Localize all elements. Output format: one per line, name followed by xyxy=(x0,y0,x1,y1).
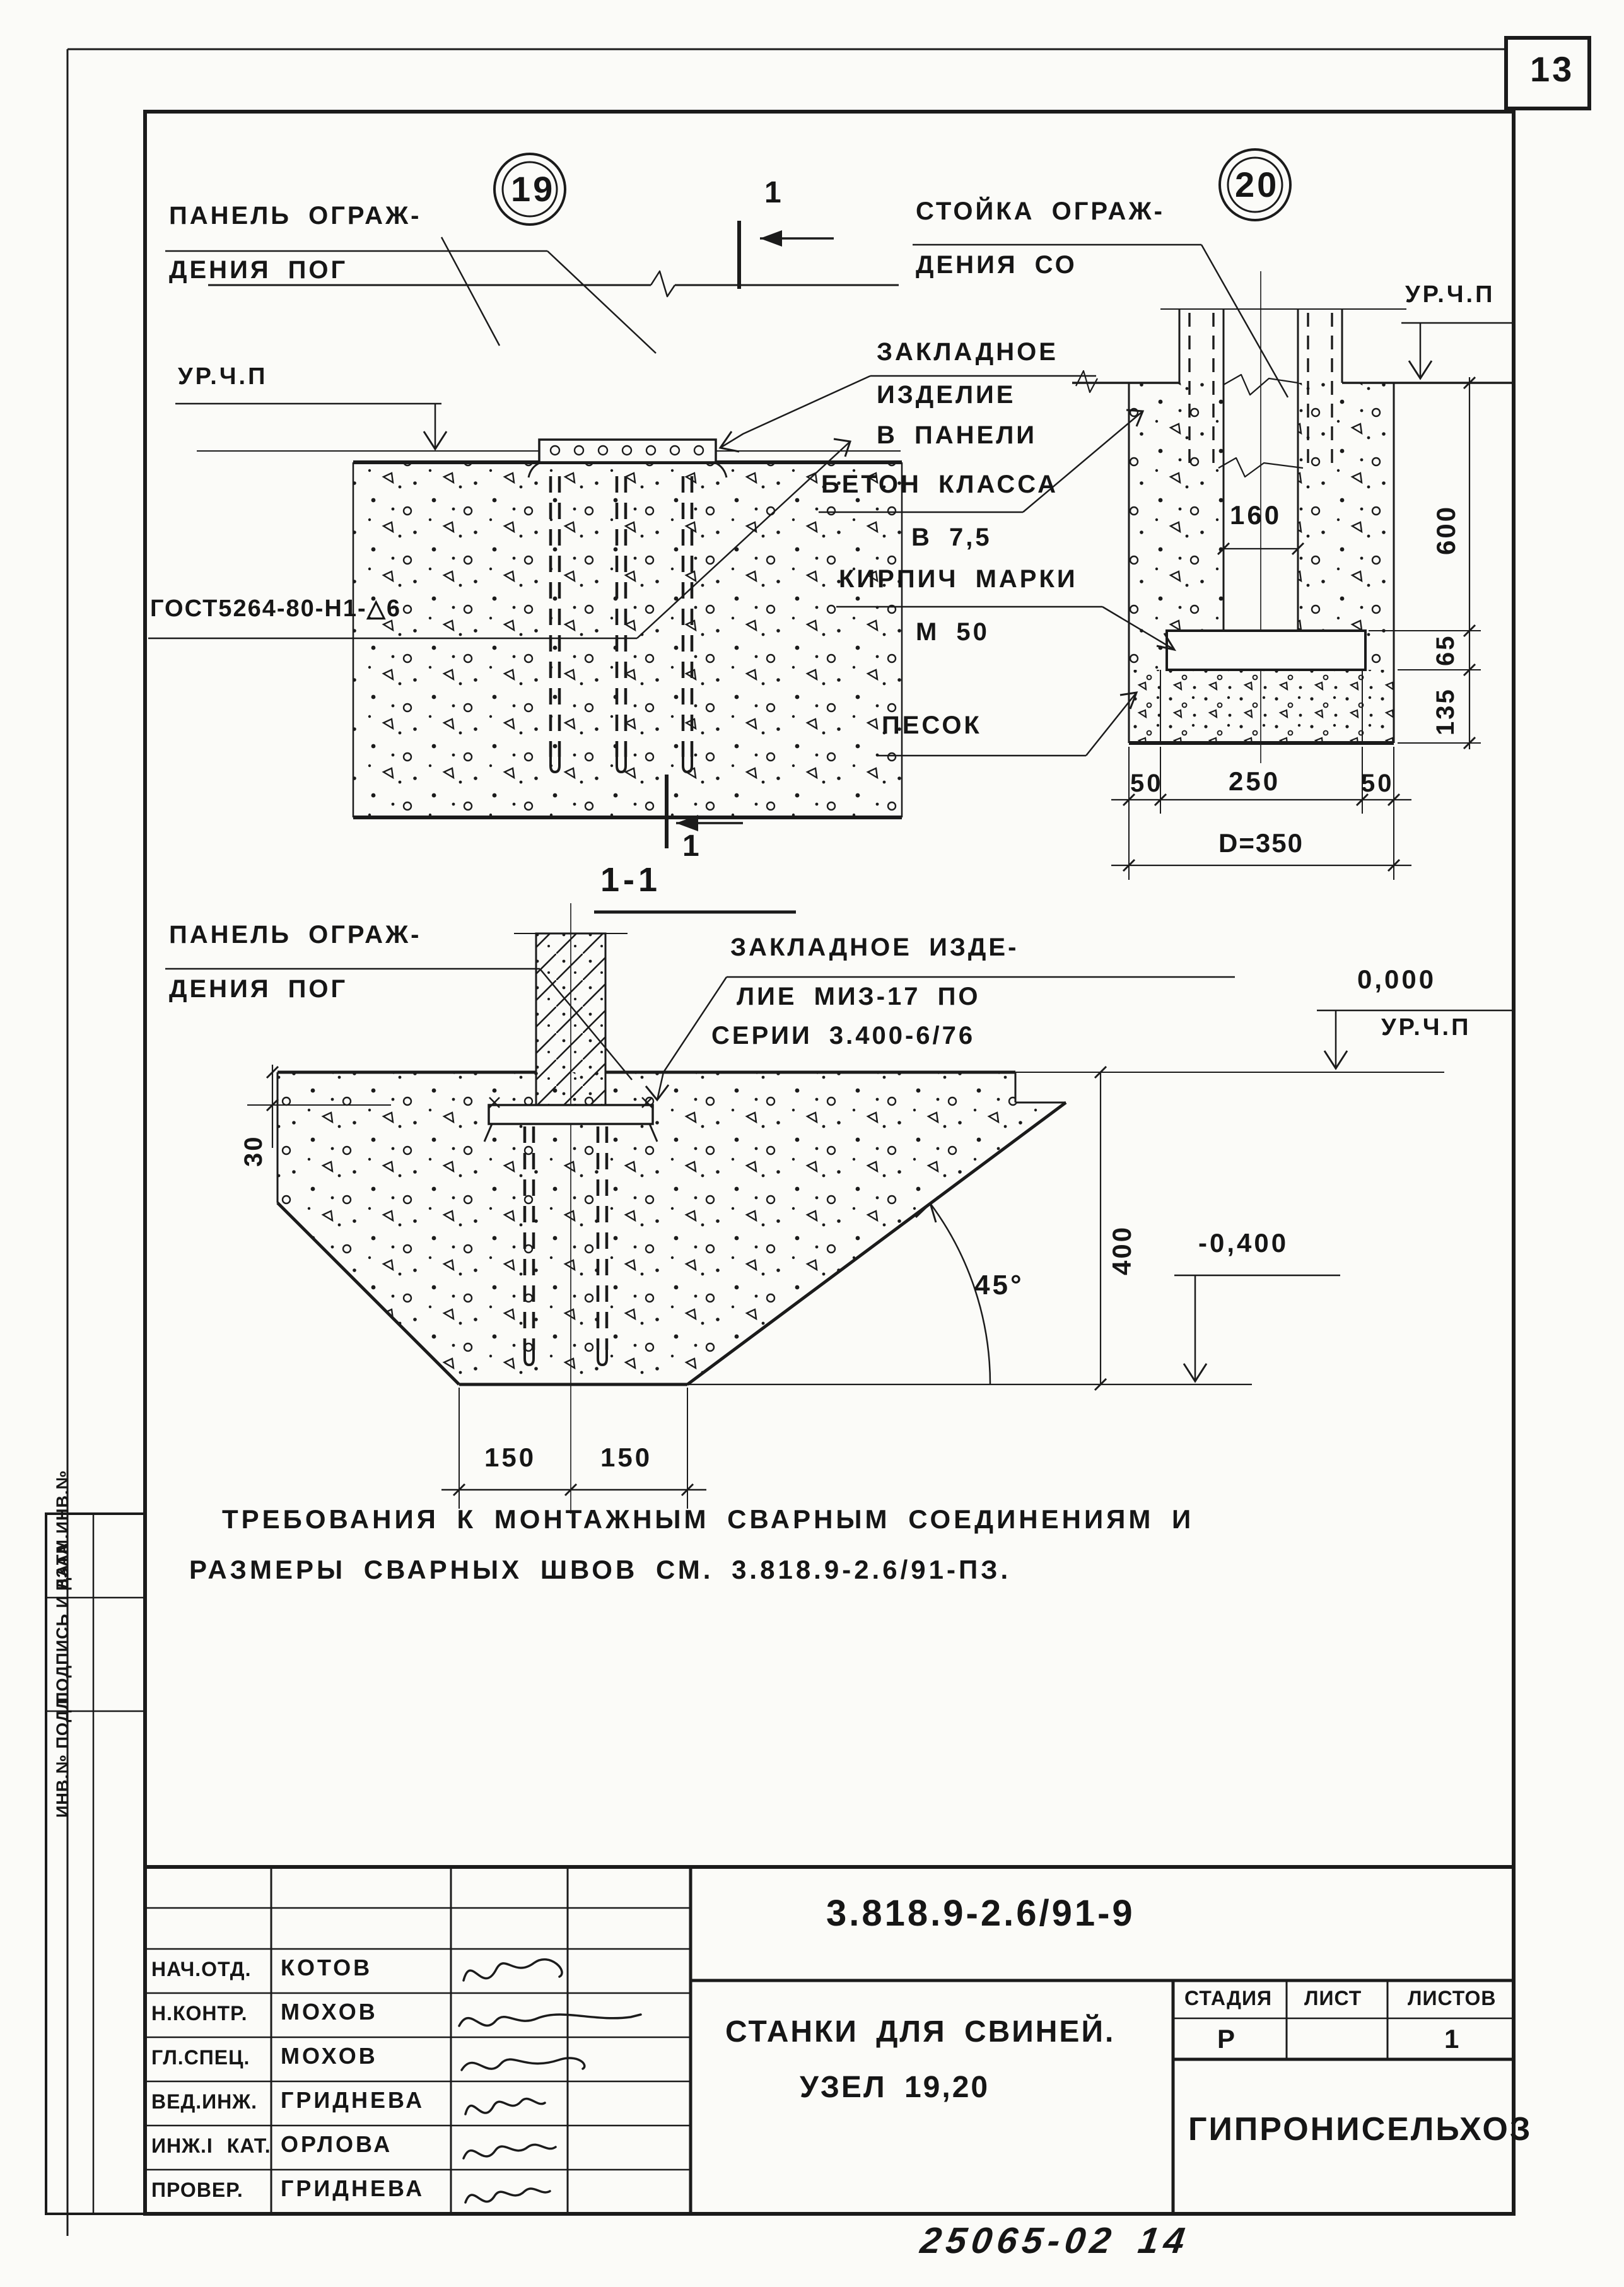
d19-cut-label-top: 1 xyxy=(764,178,784,208)
d20-concrete-label-2: В 7,5 xyxy=(911,525,992,550)
stamp-row-name: ГРИДНЕВА xyxy=(281,2177,424,2200)
signature-kotov xyxy=(464,1960,562,1980)
s11-dim-150r: 150 xyxy=(600,1444,652,1471)
section-title: 1-1 xyxy=(600,863,661,897)
stamp-sheet-label: ЛИСТ xyxy=(1304,1988,1362,2008)
dim-150s xyxy=(441,1388,706,1509)
s11-angle-45: 45° xyxy=(974,1272,1024,1299)
d19-embedded-label-2: ИЗДЕЛИЕ xyxy=(877,382,1015,407)
note-line-2: РАЗМЕРЫ СВАРНЫХ ШВОВ СМ. 3.818.9-2.6/91-… xyxy=(189,1557,1011,1583)
s11-panel-label-2: ДЕНИЯ ПОГ xyxy=(169,976,348,1002)
level-mark-d19 xyxy=(175,404,447,449)
s11-dim-30: 30 xyxy=(241,1135,266,1167)
d19-level-label: УР.Ч.П xyxy=(178,365,267,389)
stamp-sheets-value: 1 xyxy=(1444,2026,1461,2052)
d20-dim-d350: D=350 xyxy=(1218,830,1304,857)
margin-label-podpis: ПОДПИСЬ И ДАТА xyxy=(54,1542,71,1704)
s11-panel-label-1: ПАНЕЛЬ ОГРАЖ- xyxy=(169,922,421,947)
d20-dim-250: 250 xyxy=(1229,768,1280,795)
d20-dim-160: 160 xyxy=(1230,502,1282,529)
d20-dim-50l: 50 xyxy=(1130,771,1164,796)
stamp-row-role: НАЧ.ОТД. xyxy=(151,1959,251,1979)
panel-break-slash xyxy=(441,237,499,346)
stamp-org: ГИПРОНИСЕЛЬХОЗ xyxy=(1188,2113,1532,2146)
hand-archive-number: 25065-02 14 xyxy=(918,2223,1192,2259)
detail-19-number: 19 xyxy=(511,172,555,207)
s11-embedded-label-2: ЛИЕ МИЗ-17 ПО xyxy=(737,984,981,1009)
stamp-row-role: ПРОВЕР. xyxy=(151,2180,243,2200)
stamp-stage-label: СТАДИЯ xyxy=(1184,1988,1272,2008)
d20-brick-label-2: М 50 xyxy=(916,619,990,645)
d20-dim-50r: 50 xyxy=(1361,771,1394,796)
page-number: 13 xyxy=(1530,52,1574,87)
signature-mokhov-2 xyxy=(462,2058,585,2070)
d19-panel-label-2: ДЕНИЯ ПОГ xyxy=(169,257,348,283)
drawing-sheet: 13 19 ПАНЕЛЬ ОГРАЖ- ДЕНИЯ ПОГ УР.Ч.П ГОС… xyxy=(0,0,1624,2287)
d20-post-label-2: ДЕНИЯ СО xyxy=(916,252,1077,278)
margin-label-inv: ИНВ.№ ПОДЛ. xyxy=(54,1692,71,1818)
signature-gridneva-1 xyxy=(465,2099,545,2114)
s11-embedded-label-1: ЗАКЛАДНОЕ ИЗДЕ- xyxy=(730,935,1019,960)
section-cut-top xyxy=(739,221,834,289)
d19-cut-label-bottom: 1 xyxy=(682,831,702,862)
d20-concrete-label-1: БЕТОН КЛАССА xyxy=(821,472,1058,497)
d20-dim-135: 135 xyxy=(1433,687,1458,735)
d19-embedded-label-1: ЗАКЛАДНОЕ xyxy=(877,339,1058,365)
d20-post-label-1: СТОЙКА ОГРАЖ- xyxy=(916,199,1165,224)
s11-neg-level: -0,400 xyxy=(1198,1230,1288,1256)
s11-level-label: УР.Ч.П xyxy=(1381,1015,1471,1039)
stamp-row-role: ИНЖ.I КАТ. xyxy=(151,2136,271,2156)
stamp-doc-number: 3.818.9-2.6/91-9 xyxy=(826,1895,1135,1932)
stamp-row-name: ОРЛОВА xyxy=(281,2133,392,2156)
d20-level-label: УР.Ч.П xyxy=(1405,283,1495,307)
s11-zero-level: 0,000 xyxy=(1357,966,1436,993)
d19-weld-label: ГОСТ5264-80-Н1-△6 xyxy=(150,597,401,621)
d20-dim-600: 600 xyxy=(1433,505,1459,555)
level-mark-neg xyxy=(1174,1275,1340,1381)
stamp-title-2: УЗЕЛ 19,20 xyxy=(800,2073,990,2103)
stamp-row-name: ГРИДНЕВА xyxy=(281,2089,424,2112)
d20-sand-label: ПЕСОК xyxy=(882,713,982,738)
level-mark-d20 xyxy=(1401,323,1512,378)
stamp-title-1: СТАНКИ ДЛЯ СВИНЕЙ. xyxy=(725,2017,1115,2047)
stamp-row-role: ГЛ.СПЕЦ. xyxy=(151,2047,250,2068)
stamp-sheets-label: ЛИСТОВ xyxy=(1408,1988,1497,2008)
stamp-row-role: ВЕД.ИНЖ. xyxy=(151,2091,257,2112)
signature-gridneva-2 xyxy=(465,2189,550,2202)
signature-mokhov-1 xyxy=(459,2015,641,2026)
stamp-stage-value: Р xyxy=(1217,2026,1237,2052)
d19-embedded-label-3: В ПАНЕЛИ xyxy=(877,423,1037,448)
note-line-1: ТРЕБОВАНИЯ К МОНТАЖНЫМ СВАРНЫМ СОЕДИНЕНИ… xyxy=(222,1506,1194,1533)
signature-orlova xyxy=(464,2144,556,2158)
sand-layer xyxy=(1129,670,1394,743)
detail-20-number: 20 xyxy=(1235,167,1279,202)
stamp-row-name: КОТОВ xyxy=(281,1957,372,1979)
s11-dim-400: 400 xyxy=(1109,1225,1135,1275)
d20-dim-65: 65 xyxy=(1433,635,1458,667)
s11-embedded-label-3: СЕРИИ 3.400-6/76 xyxy=(711,1023,975,1048)
stamp-row-role: Н.КОНТР. xyxy=(151,2003,248,2023)
d19-panel-label-1: ПАНЕЛЬ ОГРАЖ- xyxy=(169,203,421,228)
brick-block xyxy=(1167,631,1365,670)
d20-brick-label-1: КИРПИЧ МАРКИ xyxy=(839,566,1078,592)
stamp-row-name: МОХОВ xyxy=(281,2001,378,2023)
s11-dim-150l: 150 xyxy=(484,1444,536,1471)
stamp-row-name: МОХОВ xyxy=(281,2045,378,2068)
